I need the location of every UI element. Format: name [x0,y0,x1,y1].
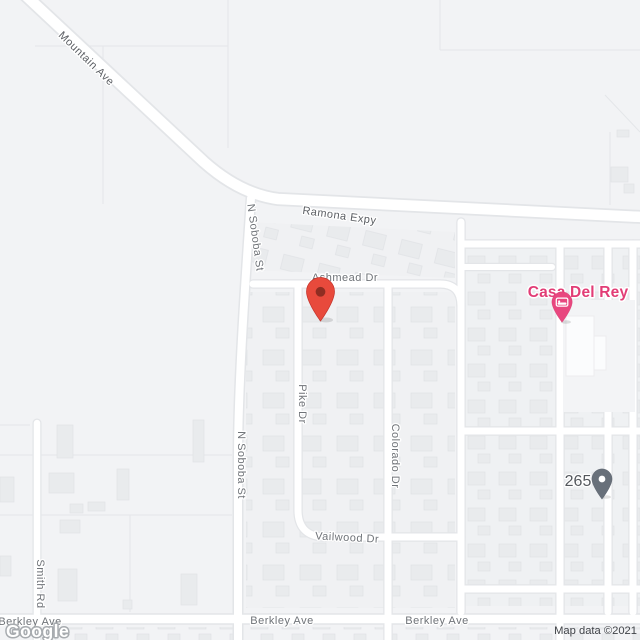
street-label-berkley-ave-center: Berkley Ave [250,615,313,627]
poi-label-casa-del-rey[interactable]: Casa Del Rey [528,284,629,301]
street-label-berkley-ave-right: Berkley Ave [405,615,468,627]
destination-pin-center-dot [316,287,326,297]
map-viewport[interactable]: Mountain Ave Ramona Expy N Soboba St N S… [0,0,640,640]
street-label-smith-rd: Smith Rd [34,559,46,608]
map-canvas[interactable]: Mountain Ave Ramona Expy N Soboba St N S… [0,0,640,640]
street-label-pike-dr: Pike Dr [296,384,308,424]
street-label-colorado-dr: Colorado Dr [389,424,401,489]
parcel-265-pin-hole [599,476,606,483]
casa-del-rey-building [563,300,635,412]
map-attribution: Map data ©2021 [554,625,637,637]
google-logo[interactable]: Google [6,621,69,640]
street-label-n-soboba-st-bottom: N Soboba St [235,431,247,499]
address-label-265: 265 [565,473,592,490]
